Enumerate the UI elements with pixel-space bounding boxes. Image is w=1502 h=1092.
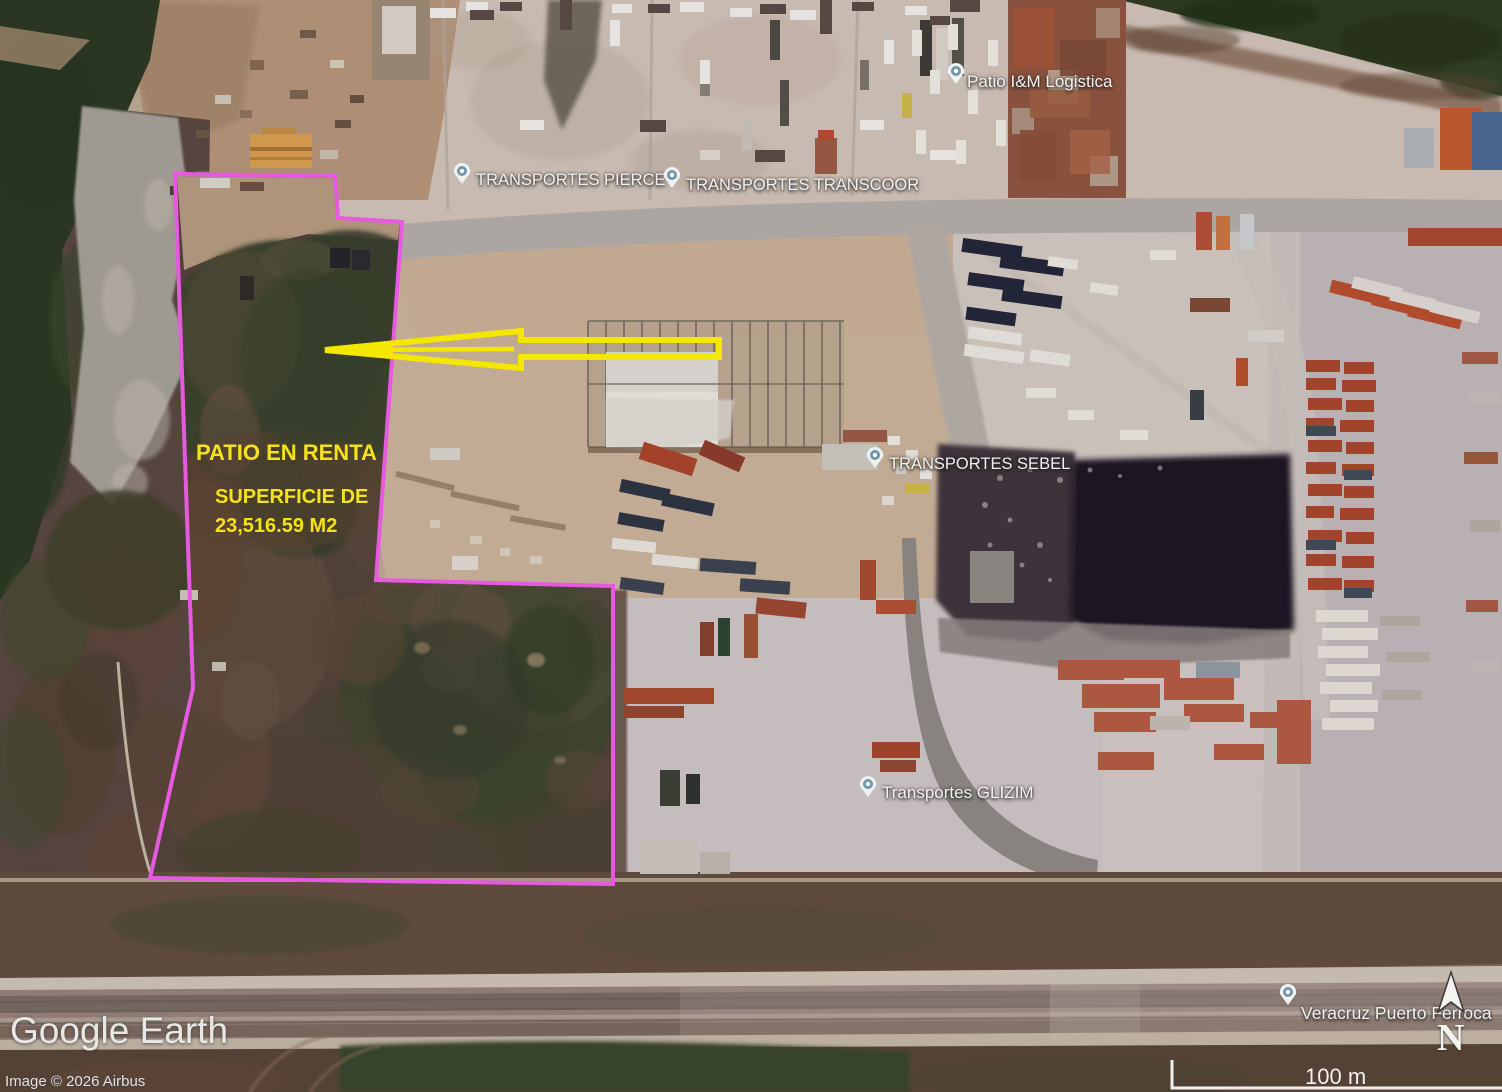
svg-text:Transportes GLIZIM: Transportes GLIZIM	[882, 783, 1033, 802]
svg-text:TRANSPORTES PIERCE: TRANSPORTES PIERCE	[476, 171, 665, 189]
svg-text:Image © 2026 Airbus: Image © 2026 Airbus	[5, 1073, 145, 1090]
svg-text:Patio I&M Logistica: Patio I&M Logistica	[967, 72, 1113, 91]
svg-text:SUPERFICIE DE: SUPERFICIE DE	[215, 486, 368, 508]
svg-text:23,516.59 M2: 23,516.59 M2	[215, 515, 337, 537]
svg-text:TRANSPORTES SEBEL: TRANSPORTES SEBEL	[889, 455, 1070, 473]
svg-text:N: N	[1437, 1017, 1464, 1059]
svg-text:TRANSPORTES TRANSCOOR: TRANSPORTES TRANSCOOR	[686, 176, 919, 194]
svg-text:PATIO EN RENTA: PATIO EN RENTA	[196, 440, 377, 465]
svg-text:100 m: 100 m	[1305, 1064, 1366, 1089]
svg-text:Google Earth: Google Earth	[10, 1010, 228, 1051]
